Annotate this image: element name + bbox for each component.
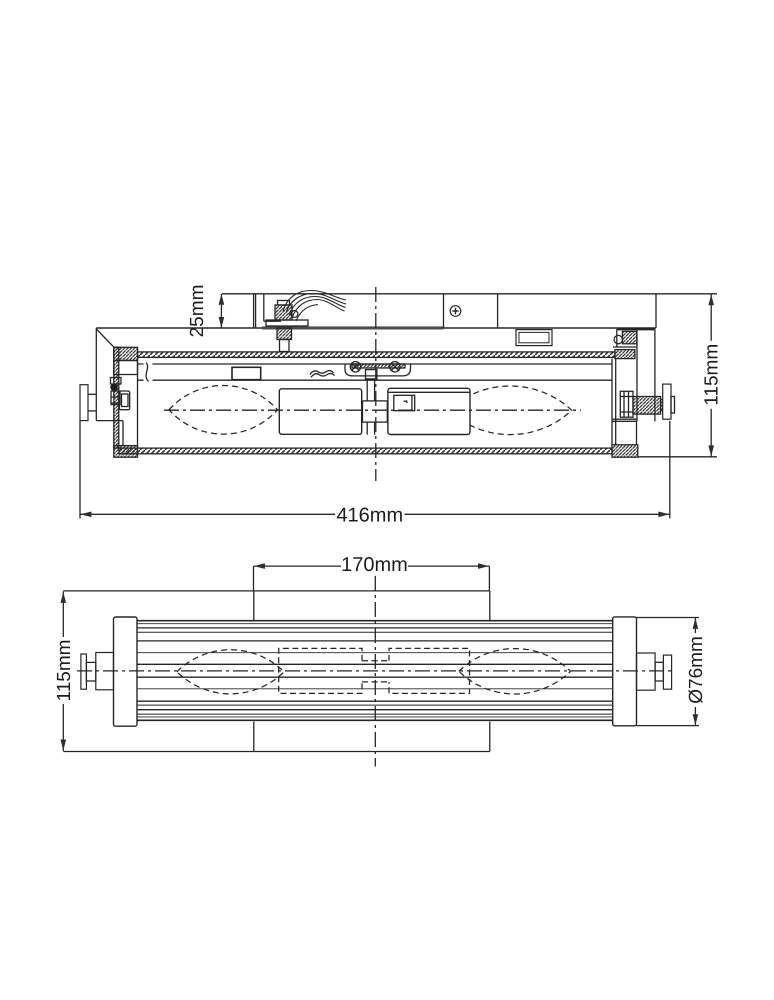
svg-text:115mm: 115mm: [54, 640, 75, 702]
svg-text:170mm: 170mm: [341, 554, 408, 576]
svg-text:115mm: 115mm: [702, 344, 723, 406]
svg-text:416mm: 416mm: [336, 504, 403, 526]
svg-text:25mm: 25mm: [187, 285, 208, 338]
svg-text:Ø76mm: Ø76mm: [686, 636, 707, 704]
